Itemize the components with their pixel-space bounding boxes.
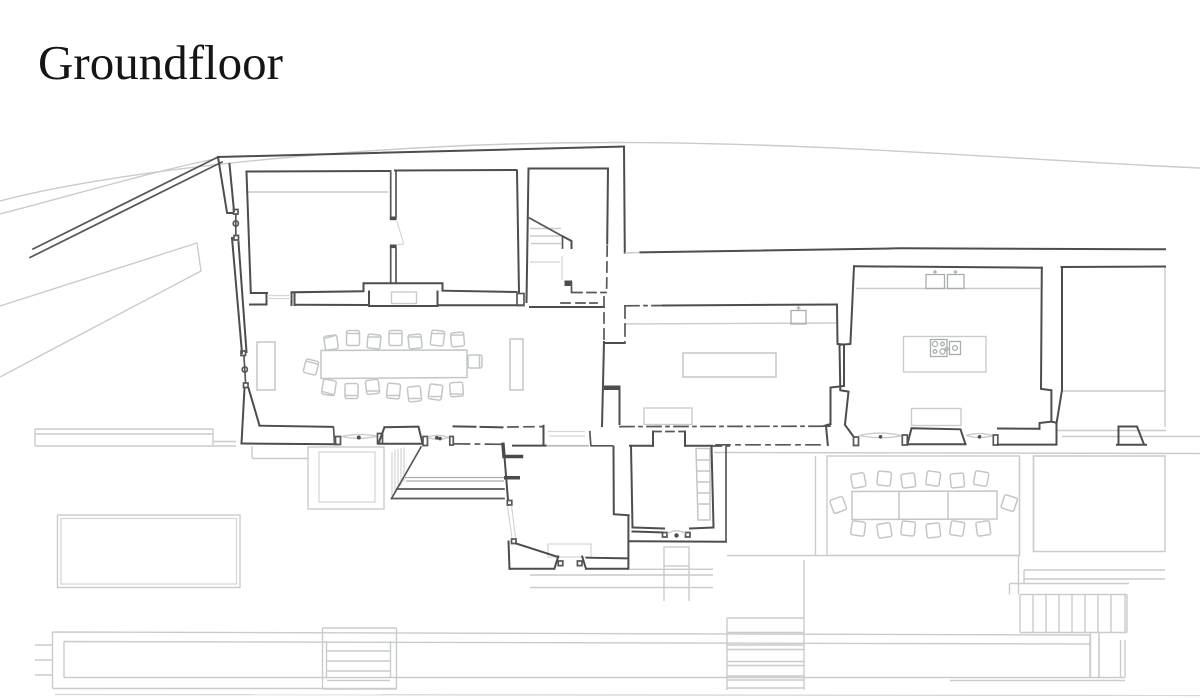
- svg-text:Groundfloor: Groundfloor: [38, 35, 283, 90]
